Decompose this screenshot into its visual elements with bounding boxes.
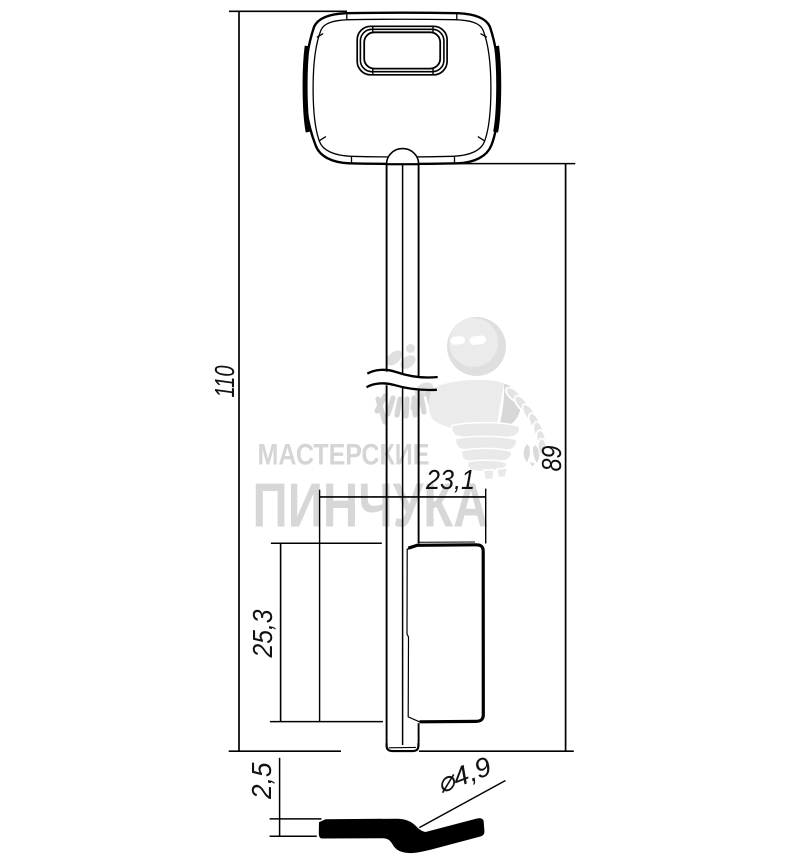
svg-text:89: 89 (536, 446, 567, 472)
svg-text:25,3: 25,3 (247, 609, 278, 658)
svg-text:23,1: 23,1 (425, 464, 475, 495)
svg-text:110: 110 (209, 365, 240, 397)
svg-text:2,5: 2,5 (246, 762, 277, 800)
svg-text:МАСТЕРСКИЕ: МАСТЕРСКИЕ (258, 439, 430, 472)
